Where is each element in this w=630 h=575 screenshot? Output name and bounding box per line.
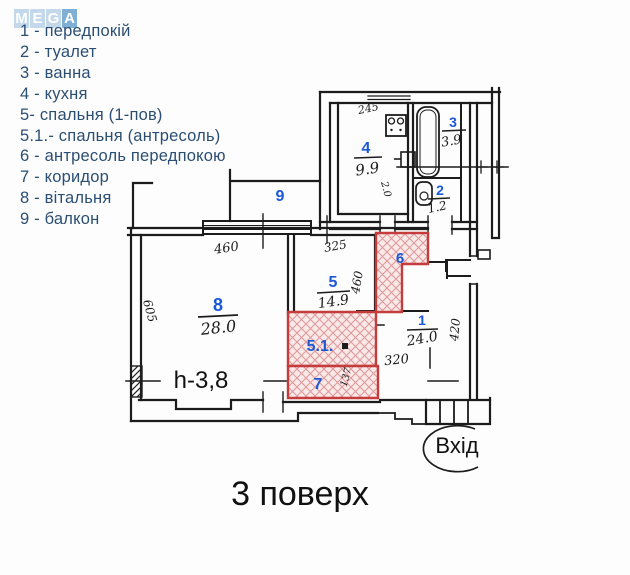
room-3-number: 3 — [449, 114, 457, 130]
legend-item-7: 7 - коридор — [20, 167, 226, 188]
room-1-area: 24.0 — [405, 328, 440, 349]
entrance-label: Вхід — [435, 433, 478, 458]
room-6-number: 6 — [396, 250, 404, 267]
room-8-number: 8 — [213, 295, 223, 315]
room-legend: 1 - передпокій 2 - туалет 3 - ванна 4 - … — [20, 21, 226, 230]
room-7-number: 7 — [314, 376, 323, 393]
room-5-area: 14.9 — [317, 292, 350, 312]
room-4-underline — [354, 157, 382, 158]
legend-item-1: 1 - передпокій — [20, 21, 226, 42]
legend-item-4: 4 - кухня — [20, 84, 226, 105]
hatched-areas — [288, 233, 428, 398]
dim-room5-depth: 460 — [348, 269, 366, 295]
wall-shaft-hatch — [131, 366, 142, 397]
room-8-area: 28.0 — [199, 316, 237, 339]
dim-room5-width: 325 — [323, 237, 348, 255]
room-3-underline — [442, 130, 466, 131]
dim-room8-width: 460 — [212, 239, 240, 257]
legend-item-6: 6 - антресоль передпокою — [20, 146, 226, 167]
legend-item-8: 8 - вітальня — [20, 188, 226, 209]
room-1-number: 1 — [418, 312, 426, 328]
legend-item-9: 9 - балкон — [20, 209, 226, 230]
room-3-area: 3.9 — [440, 132, 463, 150]
room-5-1-number: 5.1. — [307, 338, 334, 355]
room-2-area: 1.2 — [426, 198, 448, 216]
room-2-number: 2 — [436, 182, 444, 198]
room-4-number: 4 — [362, 140, 371, 157]
dim-kitchen-side: 2.0 — [378, 179, 393, 199]
ceiling-height-label: h-3,8 — [174, 367, 229, 394]
legend-item-51: 5.1.- спальня (антресоль) — [20, 126, 226, 147]
dim-room1-width: 320 — [384, 352, 410, 370]
legend-item-5: 5- спальня (1-пов) — [20, 105, 226, 126]
dim-room1-depth: 420 — [447, 317, 463, 342]
sink-icon — [394, 152, 415, 167]
stove-icon — [386, 115, 406, 136]
legend-item-2: 2 - туалет — [20, 42, 226, 63]
hatch-room-7 — [288, 366, 378, 398]
room-5-number: 5 — [329, 274, 338, 291]
hatch-room-6 — [376, 233, 428, 312]
floor-label: 3 поверх — [231, 475, 369, 513]
legend-item-3: 3 - ванна — [20, 63, 226, 84]
room-4-area: 9.9 — [354, 158, 381, 179]
room-5-1-square-mark — [342, 343, 348, 349]
room-9-number: 9 — [276, 188, 285, 205]
dim-room8-depth: 605 — [140, 298, 159, 324]
